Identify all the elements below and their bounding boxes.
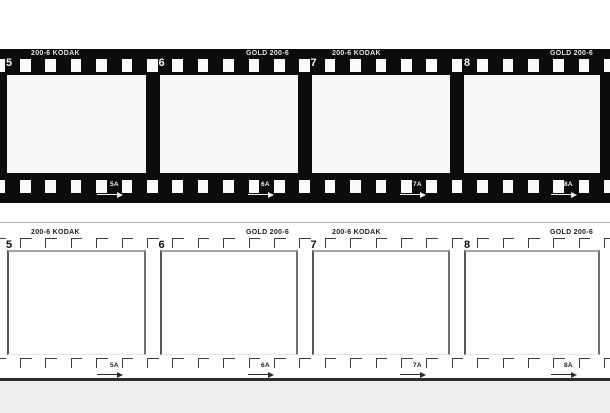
sprocket-hole (147, 59, 158, 72)
frame-number: 6 (159, 58, 165, 69)
sprocket-hole (122, 59, 133, 72)
sprocket-hole (579, 59, 590, 72)
sprocket-hole (122, 238, 134, 248)
sprocket-hole (274, 59, 285, 72)
sprocket-hole (401, 59, 412, 72)
half-frame-label: 7A (413, 182, 422, 189)
sprocket-hole (20, 59, 31, 72)
half-frame-label: 5A (110, 363, 119, 370)
film-frame (464, 250, 600, 355)
sprocket-hole (0, 180, 5, 193)
film-frame (160, 75, 299, 173)
sprocket-hole (579, 358, 591, 368)
sprocket-hole (274, 358, 286, 368)
frame-number: 7 (311, 58, 317, 69)
sprocket-hole (0, 59, 5, 72)
sprocket-hole (299, 180, 310, 193)
sprocket-hole (45, 238, 57, 248)
sprocket-hole (426, 180, 437, 193)
sprocket-hole (71, 180, 82, 193)
half-frame-label: 8A (564, 363, 573, 370)
sprocket-hole (477, 59, 488, 72)
film-edge-text: 200-6 KODAK (31, 229, 80, 236)
sprocket-hole (223, 238, 235, 248)
lower-background-band (0, 381, 610, 413)
sprocket-hole (503, 238, 515, 248)
sprocket-hole (350, 358, 362, 368)
sprocket-hole (325, 59, 336, 72)
sprocket-hole (376, 358, 388, 368)
sprocket-hole (198, 180, 209, 193)
sprocket-hole (223, 59, 234, 72)
film-edge-text: GOLD 200-6 (550, 50, 593, 57)
sprocket-hole (553, 238, 565, 248)
frame-advance-arrow-icon (551, 192, 577, 198)
arrow-line (551, 194, 572, 196)
sprocket-hole (401, 358, 413, 368)
sprocket-hole (198, 238, 210, 248)
film-edge-text: 200-6 KODAK (332, 50, 381, 57)
half-frame-label: 7A (413, 363, 422, 370)
sprocket-hole (401, 238, 413, 248)
arrow-line (97, 374, 118, 376)
sprocket-hole (274, 180, 285, 193)
sprocket-hole (325, 358, 337, 368)
film-edge-text: GOLD 200-6 (550, 229, 593, 236)
sprocket-hole (503, 180, 514, 193)
frame-advance-arrow-icon (400, 372, 426, 378)
sprocket-hole (604, 180, 610, 193)
arrow-line (400, 194, 421, 196)
sprocket-hole (172, 59, 183, 72)
negative-film-strip: 200-6 KODAKGOLD 200-6200-6 KODAKGOLD 200… (0, 49, 610, 203)
frame-advance-arrow-icon (551, 372, 577, 378)
arrow-head-icon (117, 192, 123, 198)
film-edge-text: GOLD 200-6 (246, 50, 289, 57)
sprocket-hole (452, 358, 464, 368)
arrow-head-icon (571, 192, 577, 198)
arrow-head-icon (117, 372, 123, 378)
sprocket-hole (452, 59, 463, 72)
sprocket-hole (96, 59, 107, 72)
sprocket-hole (71, 238, 83, 248)
sprocket-hole (477, 358, 489, 368)
sprocket-hole (503, 358, 515, 368)
sprocket-hole (172, 238, 184, 248)
sprocket-hole (579, 238, 591, 248)
sprocket-hole (452, 238, 464, 248)
half-frame-label: 6A (261, 363, 270, 370)
sprocket-hole (299, 59, 310, 72)
sprocket-hole (426, 59, 437, 72)
sprocket-hole (376, 180, 387, 193)
arrow-line (551, 374, 572, 376)
sprocket-hole (249, 238, 261, 248)
arrow-head-icon (420, 372, 426, 378)
film-frame (312, 250, 451, 355)
sprocket-hole (376, 238, 388, 248)
film-frame (160, 250, 299, 355)
sprocket-hole (71, 59, 82, 72)
frame-advance-arrow-icon (97, 372, 123, 378)
film-frame (7, 250, 146, 355)
sprocket-hole (172, 358, 184, 368)
sprocket-hole (553, 59, 564, 72)
sprocket-hole (350, 180, 361, 193)
frame-number: 5 (6, 58, 12, 69)
sprocket-hole (0, 358, 6, 368)
sprocket-hole (45, 59, 56, 72)
sprocket-hole (147, 180, 158, 193)
sprocket-hole (96, 238, 108, 248)
half-frame-label: 5A (110, 182, 119, 189)
sprocket-hole (45, 358, 57, 368)
sprocket-hole (376, 59, 387, 72)
film-frame (312, 75, 451, 173)
film-frame (7, 75, 146, 173)
half-frame-label: 8A (564, 182, 573, 189)
sprocket-hole (172, 180, 183, 193)
sprocket-hole (223, 358, 235, 368)
sprocket-hole (71, 358, 83, 368)
frame-number: 8 (464, 240, 470, 251)
frame-advance-arrow-icon (97, 192, 123, 198)
sprocket-hole (274, 238, 286, 248)
film-edge-text: 200-6 KODAK (31, 50, 80, 57)
sprocket-hole (299, 238, 311, 248)
sprocket-hole (198, 59, 209, 72)
sprocket-hole (579, 180, 590, 193)
arrow-head-icon (268, 192, 274, 198)
frame-advance-arrow-icon (248, 372, 274, 378)
half-frame-label: 6A (261, 182, 270, 189)
sprocket-hole (122, 180, 133, 193)
sprocket-hole (350, 59, 361, 72)
sprocket-hole (20, 358, 32, 368)
frame-advance-arrow-icon (248, 192, 274, 198)
outline-film-strip: 200-6 KODAKGOLD 200-6200-6 KODAKGOLD 200… (0, 222, 610, 381)
sprocket-hole (604, 358, 610, 368)
sprocket-hole (325, 180, 336, 193)
arrow-head-icon (420, 192, 426, 198)
sprocket-hole (20, 180, 31, 193)
sprocket-hole (426, 238, 438, 248)
sprocket-hole (477, 238, 489, 248)
sprocket-hole (604, 238, 610, 248)
frame-number: 6 (159, 240, 165, 251)
sprocket-hole (325, 238, 337, 248)
sprocket-hole (452, 180, 463, 193)
arrow-line (400, 374, 421, 376)
sprocket-hole (604, 59, 610, 72)
arrow-line (248, 374, 269, 376)
film-edge-text: GOLD 200-6 (246, 229, 289, 236)
sprocket-hole (528, 180, 539, 193)
sprocket-hole (528, 358, 540, 368)
arrow-line (97, 194, 118, 196)
frame-number: 8 (464, 58, 470, 69)
film-strips-graphic: 200-6 KODAKGOLD 200-6200-6 KODAKGOLD 200… (0, 0, 610, 413)
sprocket-hole (223, 180, 234, 193)
sprocket-hole (477, 180, 488, 193)
sprocket-hole (426, 358, 438, 368)
sprocket-hole (20, 238, 32, 248)
frame-number: 5 (6, 240, 12, 251)
sprocket-hole (249, 59, 260, 72)
sprocket-hole (147, 358, 159, 368)
sprocket-hole (528, 59, 539, 72)
arrow-head-icon (268, 372, 274, 378)
sprocket-hole (147, 238, 159, 248)
sprocket-hole (503, 59, 514, 72)
arrow-line (248, 194, 269, 196)
film-frame (464, 75, 600, 173)
sprocket-hole (198, 358, 210, 368)
sprocket-hole (528, 238, 540, 248)
sprocket-hole (350, 238, 362, 248)
sprocket-hole (299, 358, 311, 368)
sprocket-hole (45, 180, 56, 193)
arrow-head-icon (571, 372, 577, 378)
sprocket-hole (249, 358, 261, 368)
sprocket-hole (96, 358, 108, 368)
film-edge-text: 200-6 KODAK (332, 229, 381, 236)
sprocket-hole (122, 358, 134, 368)
frame-number: 7 (311, 240, 317, 251)
frame-advance-arrow-icon (400, 192, 426, 198)
